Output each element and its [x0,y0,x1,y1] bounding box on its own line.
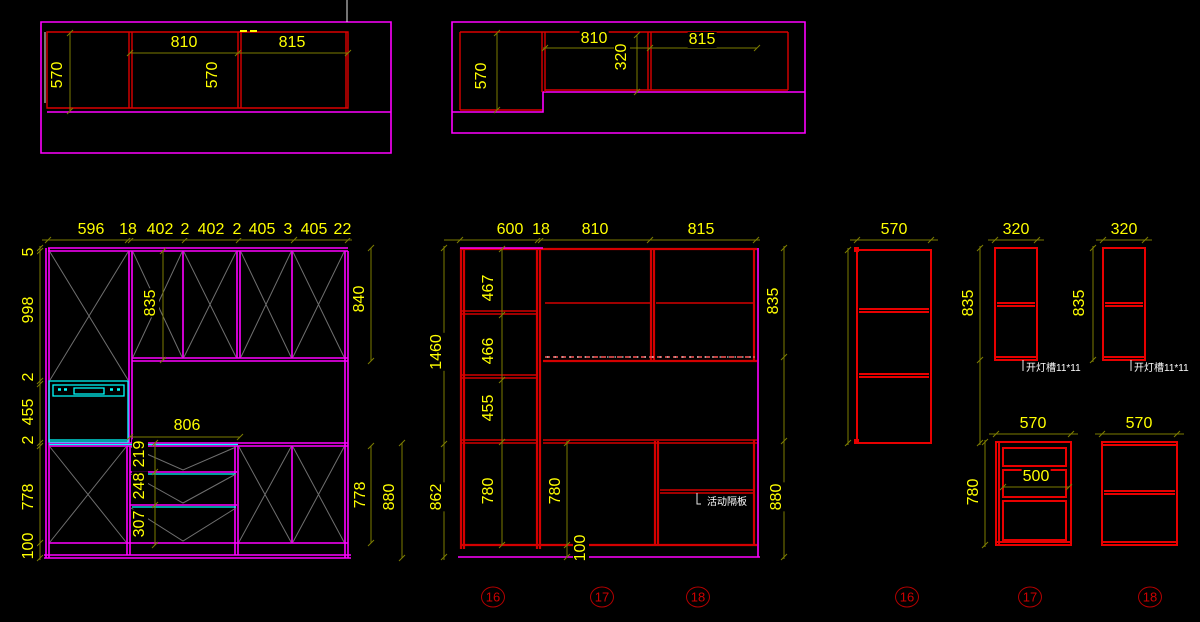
dim-em-880: 880 [769,483,785,512]
door-cross-marks [50,252,344,542]
dim-plan-right-320: 320 [614,43,630,72]
upper-cabinet-16-side [854,247,931,444]
dim-el-left-2b: 2 [21,435,37,446]
dim-l17-780: 780 [966,478,982,507]
dim-el-top-3: 3 [283,222,294,238]
dim-el-counter-806: 806 [173,418,202,434]
dim-u18-835: 835 [1072,289,1088,318]
view-marker-18b: 18 [1138,587,1162,608]
elevation-left [37,237,405,561]
dim-el-top-402b: 402 [197,222,226,238]
dim-u18-320: 320 [1110,222,1139,238]
dim-el-left-5: 5 [21,247,37,258]
cad-viewport: 570 810 815 570 570 810 320 815 596 18 4… [0,0,1200,622]
oven-appliance [49,381,128,442]
dim-em-top-810: 810 [581,222,610,238]
base-cabinet-18-side [1102,442,1177,545]
dim-el-top-2b: 2 [232,222,243,238]
dim-el-top-18: 18 [118,222,138,238]
dim-em-466: 466 [481,337,497,366]
dim-el-wall-835: 835 [143,289,159,318]
dim-el-left-100: 100 [21,532,37,561]
dim-plan-right-depth: 570 [474,62,490,91]
dim-el-top-405b: 405 [300,222,329,238]
note-movable-shelf: 活动隔板 [707,498,747,508]
plan-view-right [452,22,805,133]
dim-em-835: 835 [766,287,782,316]
grip-point [854,247,859,252]
dim-el-left-455: 455 [21,398,37,427]
dim-el-top-2d: 2 [342,222,353,238]
dim-plan-left-815: 815 [278,35,307,51]
view-marker-16b: 16 [895,587,919,608]
dim-em-862: 862 [429,483,445,512]
dim-l18-570: 570 [1125,416,1154,432]
dim-plan-right-810: 810 [580,31,609,47]
dim-em-780b: 780 [548,477,564,506]
shelf-note-leader [697,493,701,504]
dim-em-top-600: 600 [496,222,525,238]
dim-em-top-18: 18 [531,222,551,238]
note-light-groove-2: 开灯槽11*11 [1134,364,1189,374]
dim-plan-right-815: 815 [688,32,717,48]
dim-em-100: 100 [573,534,589,563]
dim-el-left-2a: 2 [21,372,37,383]
dim-el-wall-840: 840 [352,285,368,314]
dim-l17-500: 500 [1022,469,1051,485]
grip-point [854,439,859,444]
dim-u16-570: 570 [880,222,909,238]
dim-u17-320: 320 [1002,222,1031,238]
dim-el-drawer-307: 307 [132,510,148,539]
dim-em-780a: 780 [481,477,497,506]
dim-l17-570: 570 [1019,416,1048,432]
dim-plan-left-depth: 570 [50,61,66,90]
dim-em-455: 455 [481,394,497,423]
dim-em-top-815: 815 [687,222,716,238]
dim-el-base-880: 880 [382,483,398,512]
dim-u17-835: 835 [961,289,977,318]
view-marker-18a: 18 [686,587,710,608]
view-marker-16a: 16 [481,587,505,608]
dim-el-drawer-248: 248 [132,472,148,501]
dim-plan-left-depth2: 570 [205,61,221,90]
dim-el-top-405a: 405 [248,222,277,238]
view-marker-17b: 17 [1018,587,1042,608]
dim-el-base-778: 778 [353,481,369,510]
base-cabinet-17-side [996,442,1071,545]
dim-el-drawer-219: 219 [132,440,148,469]
dim-el-top-596: 596 [77,222,106,238]
cad-linework [0,0,1200,622]
dim-el-left-778: 778 [21,483,37,512]
note-light-groove-1: 开灯槽11*11 [1026,364,1081,374]
upper-cabinet-17-section [995,248,1037,371]
dim-el-top-2a: 2 [180,222,191,238]
upper-cabinet-18-section [1103,248,1145,371]
elev-left-dim-ticks [37,237,405,561]
dim-plan-left-810: 810 [170,35,199,51]
dim-el-left-998: 998 [21,296,37,325]
side-views [845,237,1184,548]
dim-em-467: 467 [481,274,497,303]
dim-el-top-402a: 402 [146,222,175,238]
view-marker-17a: 17 [590,587,614,608]
dim-em-1460: 1460 [429,333,445,371]
